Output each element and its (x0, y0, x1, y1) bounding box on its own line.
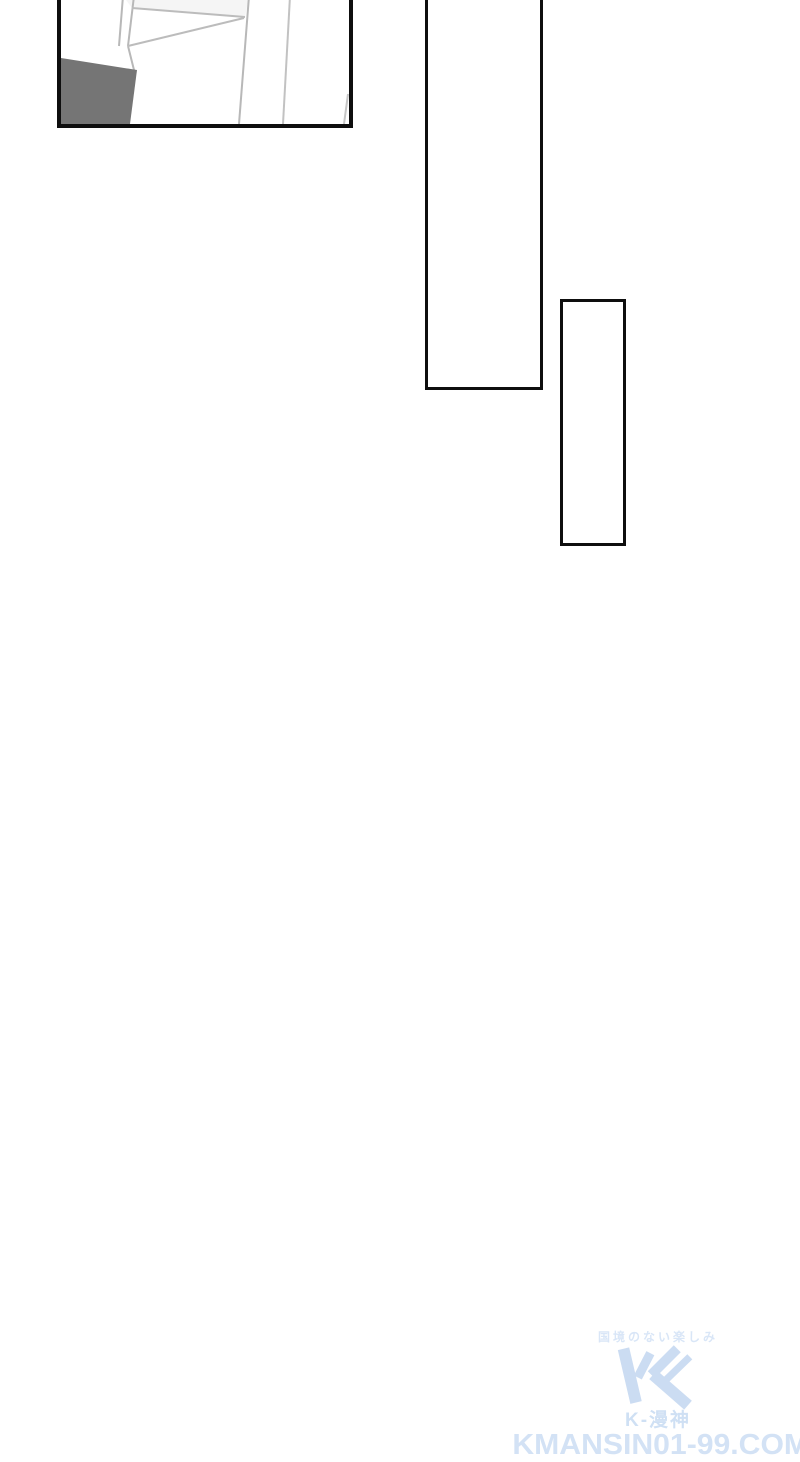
empty-panel-small (560, 299, 626, 546)
empty-panel-tall (425, 0, 543, 390)
watermark-brand-name: K-漫神 (518, 1411, 798, 1431)
manga-panel-art (57, 0, 353, 128)
site-watermark: 国境のない楽しみ K-漫神 KMANSIN01-99.COM (518, 1330, 798, 1460)
k-logo-icon (602, 1345, 714, 1417)
watermark-site-url: KMANSIN01-99.COM (512, 1431, 800, 1460)
panel-line-art (61, 0, 349, 124)
gray-desk-shape (61, 57, 137, 124)
watermark-tagline: 国境のない楽しみ (518, 1330, 798, 1344)
manga-page: 国境のない楽しみ K-漫神 KMANSIN01-99.COM (0, 0, 800, 1462)
